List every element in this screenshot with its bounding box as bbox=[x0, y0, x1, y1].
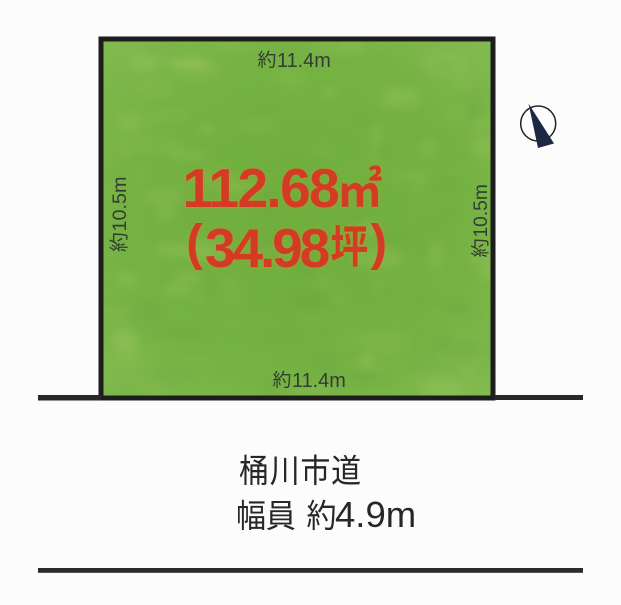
svg-text:11.4m: 11.4m bbox=[277, 50, 331, 72]
svg-text:): ) bbox=[371, 215, 388, 271]
svg-text:(: ( bbox=[186, 215, 203, 271]
svg-text:4.9m: 4.9m bbox=[335, 494, 416, 535]
svg-text:10.5m: 10.5m bbox=[471, 184, 492, 237]
svg-text:112.68: 112.68 bbox=[183, 157, 339, 219]
svg-text:10.5m: 10.5m bbox=[109, 177, 131, 232]
svg-text:34.98: 34.98 bbox=[205, 217, 329, 279]
svg-text:11.4m: 11.4m bbox=[292, 370, 346, 392]
